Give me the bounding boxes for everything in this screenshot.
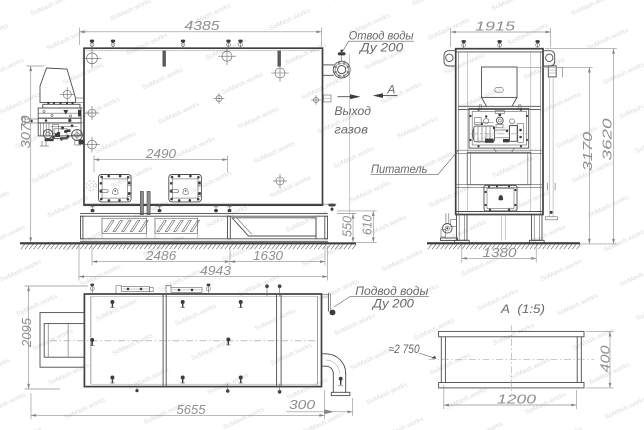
svg-text:2486: 2486 xyxy=(145,249,177,263)
svg-text:3620: 3620 xyxy=(601,118,615,160)
svg-text:Ду 200: Ду 200 xyxy=(371,296,414,310)
svg-text:300: 300 xyxy=(289,398,315,412)
svg-text:1200: 1200 xyxy=(497,392,536,406)
svg-text:газов: газов xyxy=(334,122,368,136)
svg-text:1380: 1380 xyxy=(483,246,517,260)
svg-text:А (1:5): А (1:5) xyxy=(500,302,545,316)
svg-text:1915: 1915 xyxy=(475,20,515,34)
svg-text:≈2 750: ≈2 750 xyxy=(389,342,420,356)
svg-text:Питатель: Питатель xyxy=(371,162,428,176)
svg-text:2490: 2490 xyxy=(145,147,176,161)
svg-text:5655: 5655 xyxy=(177,403,206,417)
svg-text:А: А xyxy=(386,82,395,96)
svg-text:550: 550 xyxy=(341,216,355,237)
svg-text:4385: 4385 xyxy=(185,19,220,33)
svg-text:400: 400 xyxy=(599,345,613,372)
svg-text:4943: 4943 xyxy=(200,264,231,278)
svg-text:610: 610 xyxy=(361,215,375,235)
svg-text:1630: 1630 xyxy=(253,249,283,263)
svg-text:3070: 3070 xyxy=(19,115,33,148)
svg-text:2095: 2095 xyxy=(20,318,34,348)
svg-text:3170: 3170 xyxy=(581,132,595,171)
svg-text:Выход: Выход xyxy=(334,104,371,118)
svg-text:Ду 200: Ду 200 xyxy=(358,40,404,54)
